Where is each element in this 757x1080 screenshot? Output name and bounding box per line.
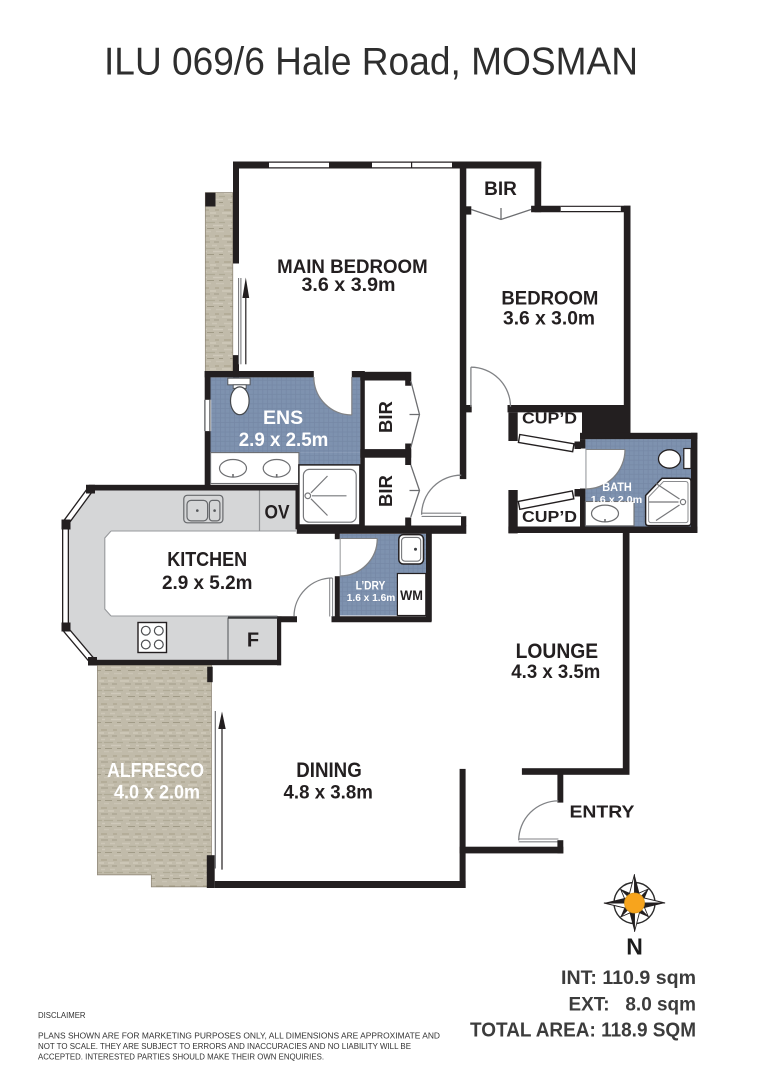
svg-text:ILU 069/6 Hale Road, MOSMAN: ILU 069/6 Hale Road, MOSMAN	[104, 41, 638, 84]
svg-text:2.9 x 5.2m: 2.9 x 5.2m	[162, 572, 253, 594]
svg-text:3.6 x 3.9m: 3.6 x 3.9m	[302, 275, 396, 296]
svg-text:1.6 x 2.0m: 1.6 x 2.0m	[591, 495, 643, 506]
svg-text:ACCEPTED. INTERESTED PARTIES S: ACCEPTED. INTERESTED PARTIES SHOULD MAKE…	[38, 1053, 324, 1062]
svg-text:1.6 x 1.6m: 1.6 x 1.6m	[347, 593, 396, 604]
svg-text:CUP’D: CUP’D	[522, 411, 577, 428]
svg-text:WM: WM	[400, 587, 423, 603]
svg-text:PLANS SHOWN ARE FOR MARKETING: PLANS SHOWN ARE FOR MARKETING PURPOSES O…	[38, 1032, 440, 1041]
svg-text:BATH: BATH	[602, 481, 632, 494]
svg-text:TOTAL AREA: 118.9 SQM: TOTAL AREA: 118.9 SQM	[470, 1020, 696, 1042]
svg-text:ENTRY: ENTRY	[570, 802, 635, 822]
svg-text:DISCLAIMER: DISCLAIMER	[38, 1011, 86, 1020]
svg-text:BIR: BIR	[484, 179, 517, 200]
svg-text:DINING: DINING	[296, 759, 362, 782]
svg-text:BEDROOM: BEDROOM	[501, 288, 598, 310]
svg-text:BIR: BIR	[375, 475, 396, 507]
svg-text:ENS: ENS	[263, 407, 303, 429]
svg-text:NOT TO SCALE. THEY ARE SUBJECT: NOT TO SCALE. THEY ARE SUBJECT TO ERRORS…	[38, 1042, 411, 1051]
svg-text:4.0 x 2.0m: 4.0 x 2.0m	[114, 783, 200, 804]
svg-text:F: F	[247, 630, 259, 652]
svg-text:L’DRY: L’DRY	[356, 578, 386, 592]
svg-text:3.6 x 3.0m: 3.6 x 3.0m	[503, 309, 595, 330]
svg-text:4.3 x 3.5m: 4.3 x 3.5m	[511, 662, 600, 683]
svg-text:4.8 x 3.8m: 4.8 x 3.8m	[284, 783, 373, 804]
svg-text:OV: OV	[265, 503, 290, 524]
svg-text:N: N	[626, 934, 643, 960]
svg-text:LOUNGE: LOUNGE	[516, 639, 599, 663]
svg-text:2.9 x 2.5m: 2.9 x 2.5m	[239, 430, 329, 451]
svg-text:EXT: 8.0 sqm: EXT: 8.0 sqm	[569, 995, 697, 1016]
svg-text:ALFRESCO: ALFRESCO	[107, 759, 204, 782]
svg-text:KITCHEN: KITCHEN	[167, 549, 247, 571]
svg-text:BIR: BIR	[375, 401, 396, 433]
svg-text:CUP’D: CUP’D	[522, 509, 577, 526]
svg-text:INT: 110.9 sqm: INT: 110.9 sqm	[561, 968, 696, 989]
